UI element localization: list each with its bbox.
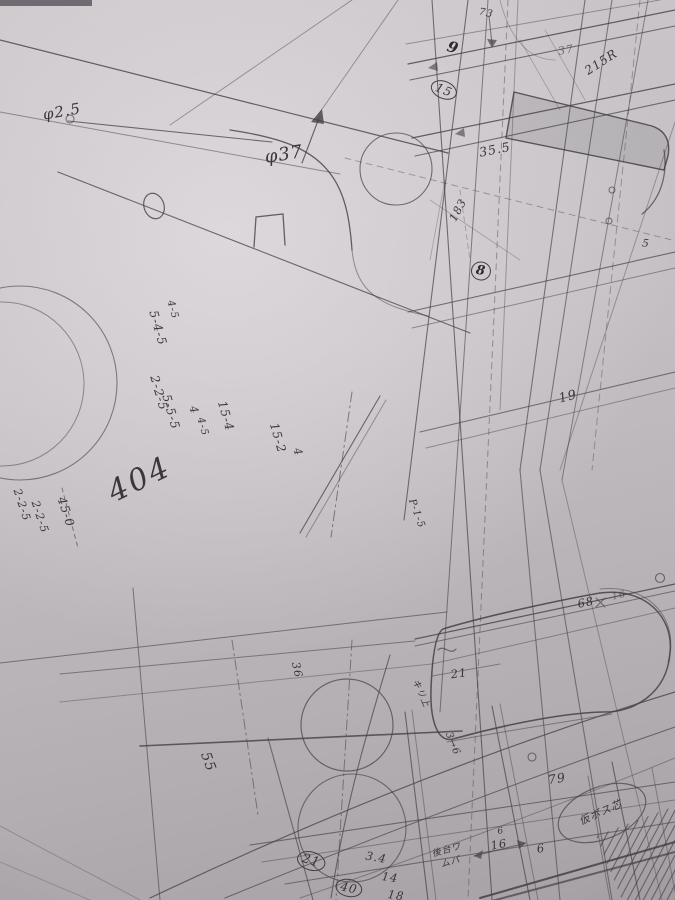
open-rectangle-glyph [254,214,285,247]
annotation-5: 5 [642,238,651,249]
annotation-37: 37 [557,43,575,57]
sketch-drawing [0,0,675,900]
annotation-6-right: 6 [536,843,546,856]
photo-of-technical-sketch: φ2.5 φ37 73 9 15 35.5 37 215R 183 8 19 5… [0,0,675,900]
rail-lines-right [345,0,675,448]
annotation-79: 79 [547,771,567,786]
spinner-circle [360,133,432,205]
annotation-21: 21 [450,667,468,681]
bottom-left-circles [133,588,462,900]
arrowhead [311,109,324,124]
construction-lines-top-left [0,0,470,548]
annotation-14: 14 [381,871,399,885]
hatched-fairing [0,574,675,743]
left-arc-circle [0,286,117,480]
fairing-outline [431,592,670,739]
annotation-6-above: 6 [497,827,505,837]
annotation-18: 18 [387,889,405,900]
annotation-36: 36 [290,661,304,679]
rail-arrow [428,62,438,71]
annotation-16: 16 [490,838,509,852]
